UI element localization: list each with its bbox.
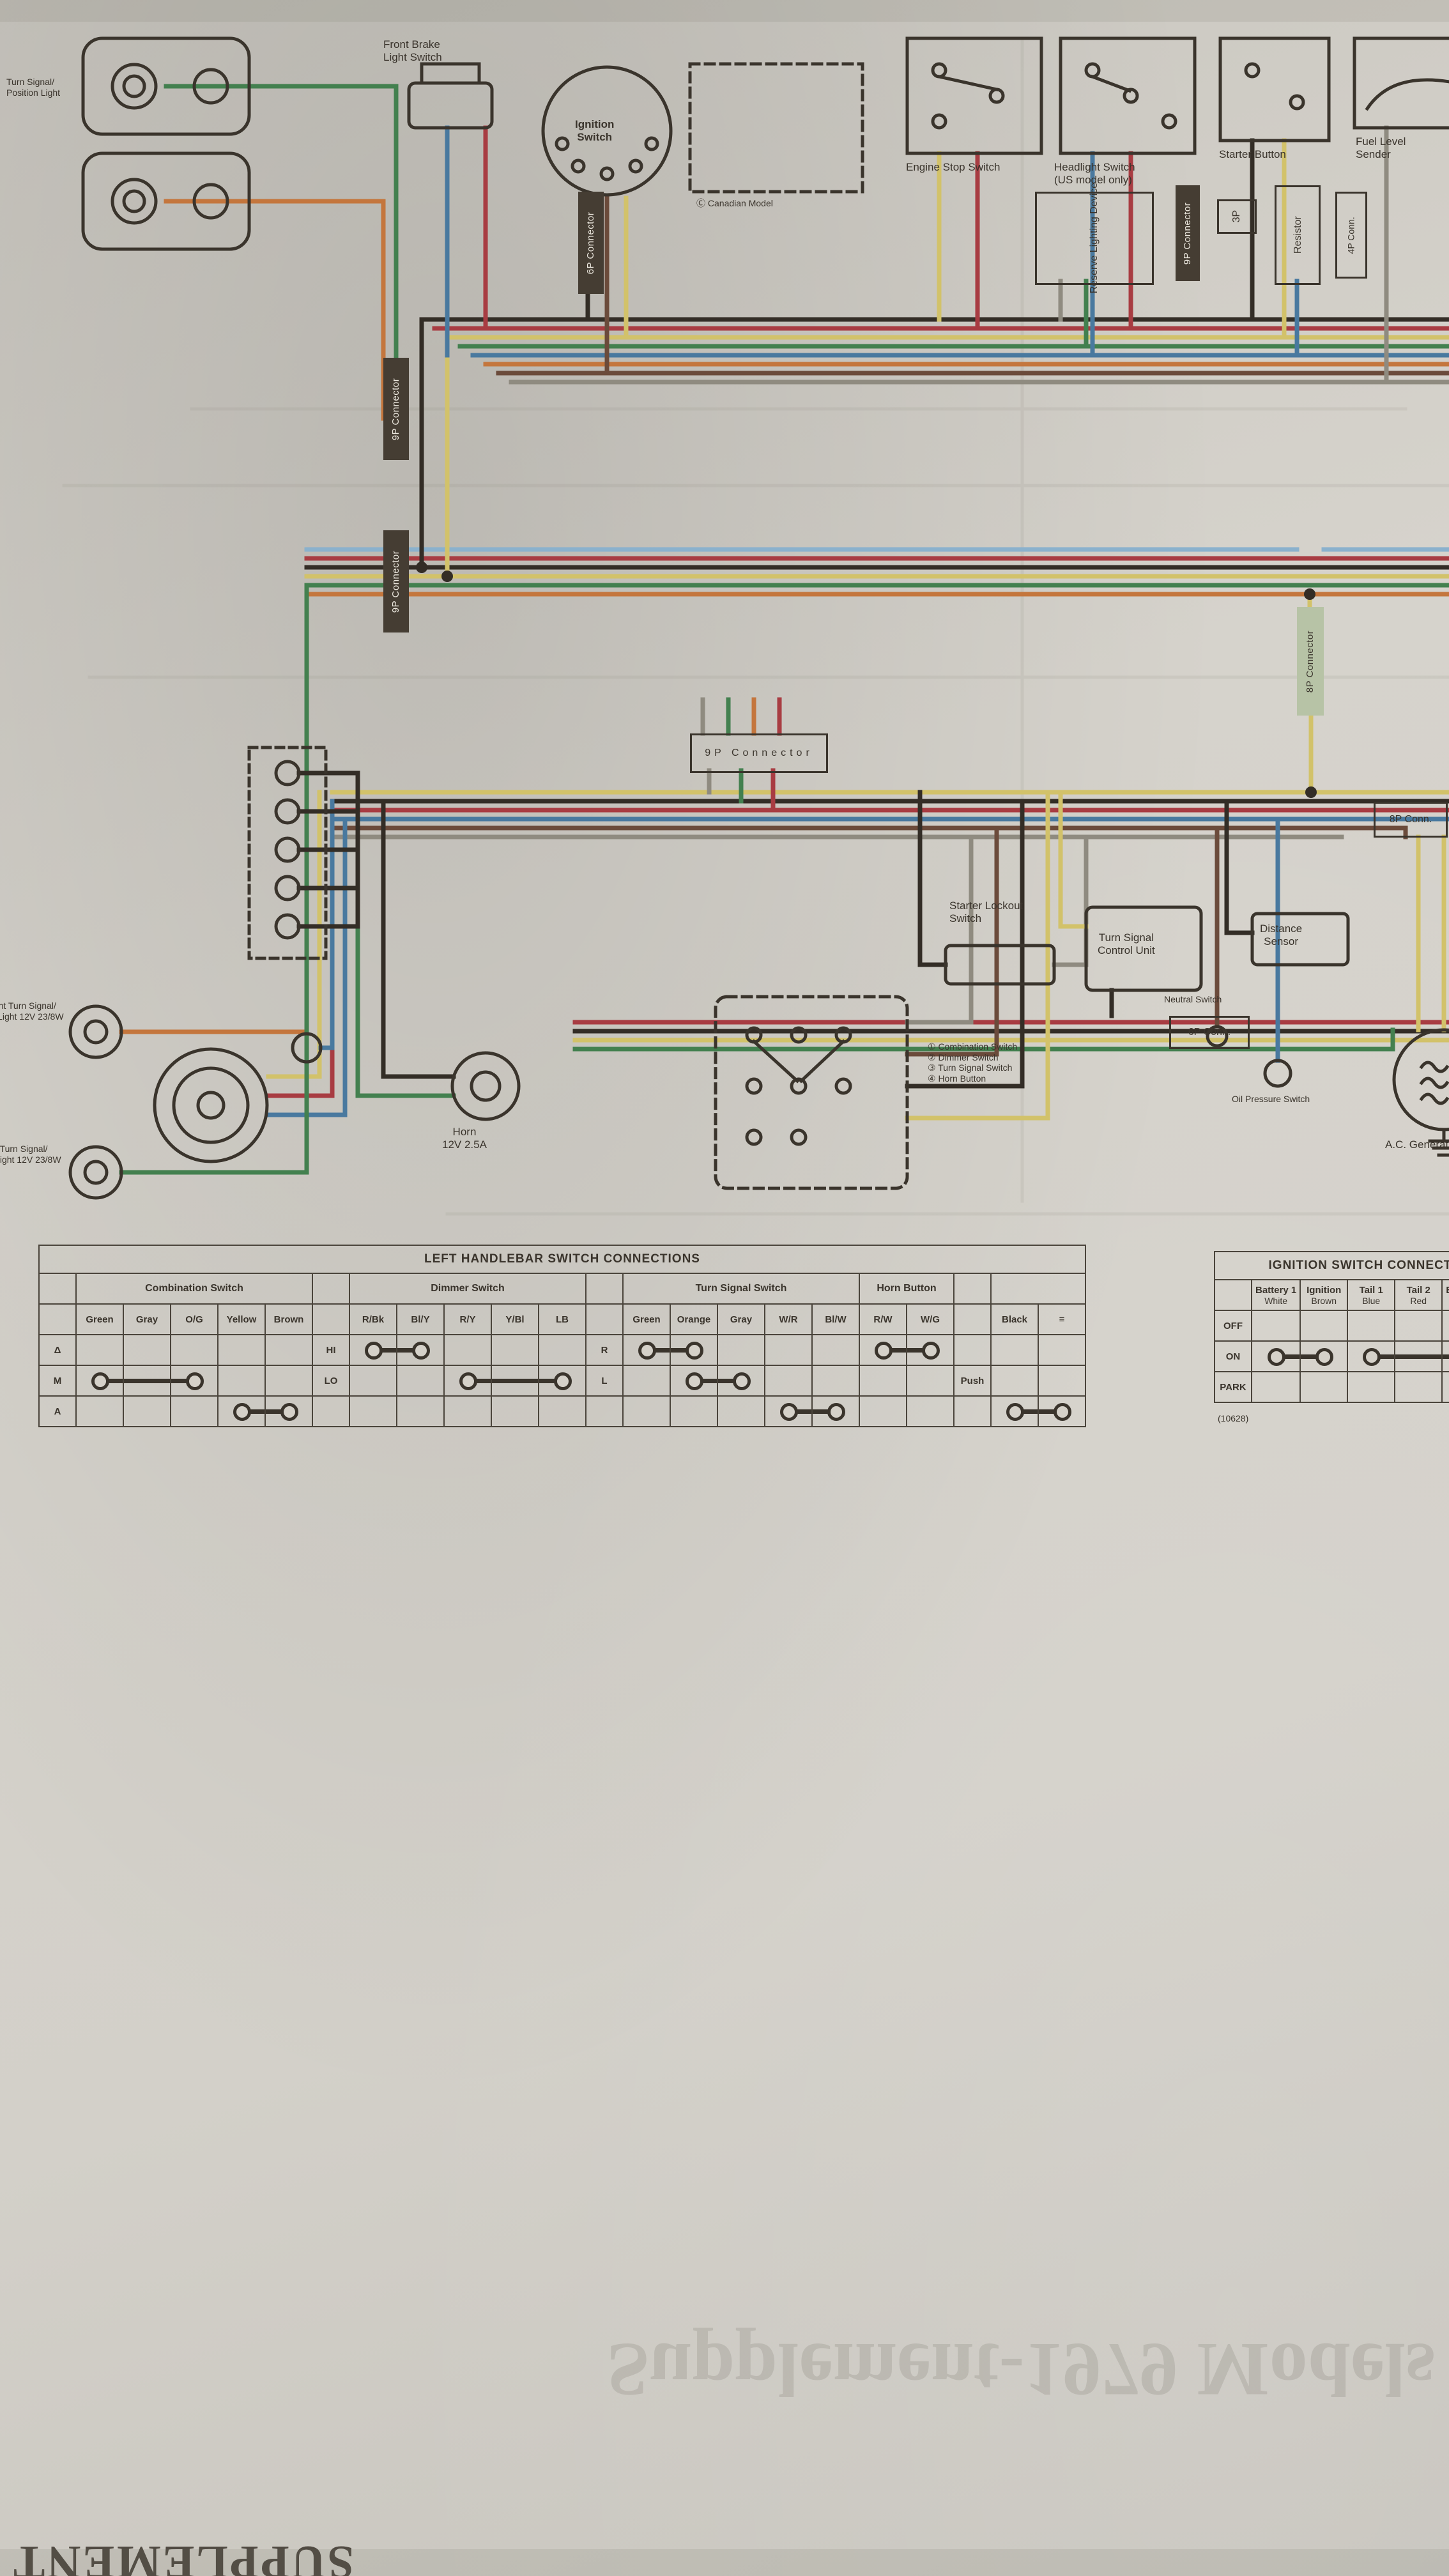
label-oil-pressure: Oil Pressure Switch [1232,1094,1310,1105]
photo-edge-bottom [0,2549,1449,2576]
label-6p-bar: 6P Connector [586,211,597,273]
headlight-icon [155,1049,267,1161]
label-front-right-signal: Front Right Turn Signal/ Running Light 1… [0,1000,64,1022]
diagram-canvas: path,line,circle,rect,ellipse{fill:none;… [0,0,1449,1449]
photo-edge-top [0,0,1449,22]
label-8p-bar: 8P Connector [1305,630,1316,692]
connector-9p-b: 9P Connector [383,530,409,632]
label-9p-mid: 9P Connector [705,747,813,759]
ignition-switch-table: IGNITION SWITCH CONNECTIONSBattery 1Whit… [1214,1251,1449,1403]
harness-trunk-lower [332,792,1449,939]
connection-table: LEFT HANDLEBAR SWITCH CONNECTIONSCombina… [38,1245,1086,1427]
horn-icon [452,1053,519,1119]
starter-lockout-icon [946,946,1054,984]
front-position-lights-icon [83,38,249,249]
label-ignition-switch: Ignition Switch [575,118,614,144]
front-turn-signal-icons [70,1006,321,1198]
left-switch-housing-icon [716,997,907,1188]
label-fuel-sender: Fuel Level Sender [1356,135,1406,161]
show-through-watermark: Supplement-1979 Models [607,2326,1436,2414]
label-neutral-switch: Neutral Switch [1164,994,1222,1005]
label-3p: 3P [1230,210,1243,223]
label-reserve-lighting: Reserve Lighting Device [1088,183,1100,293]
label-horn: Horn 12V 2.5A [442,1126,487,1151]
label-engine-stop: Engine Stop Switch [906,161,1000,174]
label-4p-top: 4P Conn. [1346,217,1357,254]
footnote: (10628) [1218,1413,1248,1424]
label-6p-tscu: 6P Conn. [1188,1026,1230,1038]
connector-9p-a: 9P Connector [383,358,409,460]
reserve-lighting-box: Reserve Lighting Device [1035,192,1154,285]
label-ac-generator: A.C. Generator [1385,1138,1449,1151]
label-front-left-signal: Front Left Turn Signal/ Running Light 12… [0,1144,61,1165]
label-9p-right: 9P Connector [1183,202,1193,264]
wiring-diagram-photo: path,line,circle,rect,ellipse{fill:none;… [0,0,1449,2576]
connector-8p-bar: 8P Connector [1297,607,1324,716]
connector-3p: 3P [1217,199,1257,234]
connector-9p-mid: 9P Connector [690,733,828,773]
label-ts-position: Turn Signal/ Position Light [6,77,60,98]
label-starter-lockout: Starter Lockout Switch [949,900,1023,925]
connection-table: IGNITION SWITCH CONNECTIONSBattery 1Whit… [1214,1251,1449,1403]
label-tscu: Turn Signal Control Unit [1098,931,1155,957]
canadian-model-box [690,64,862,192]
connector-8p-small: 8P Conn. [1374,802,1448,838]
label-9p-b: 9P Connector [391,550,402,612]
left-handlebar-table: LEFT HANDLEBAR SWITCH CONNECTIONSCombina… [38,1245,1086,1427]
connector-6p-bar: 6P Connector [578,192,604,294]
connector-6p-tscu: 6P Conn. [1169,1016,1250,1049]
connector-9p-right: 9P Connector [1176,185,1200,281]
label-front-brake: Front Brake Light Switch [383,38,442,64]
label-resistor: Resistor [1291,217,1303,254]
branch-wires [121,86,1449,1172]
label-distance-sensor: Distance Sensor [1260,923,1302,948]
resistor-box: Resistor [1275,185,1321,285]
connector-4p-top: 4P Conn. [1335,192,1367,279]
ac-generator-icon [1394,1030,1449,1130]
label-starter-button: Starter Button [1219,148,1286,161]
oil-pressure-switch-icon [1265,1061,1291,1086]
front-brake-switch-icon [409,64,492,128]
label-9p-a: 9P Connector [391,378,402,440]
label-canadian-model: Ⓒ Canadian Model [696,198,773,209]
label-8p-small: 8P Conn. [1390,813,1432,825]
switch-legend: ① Combination Switch ② Dimmer Switch ③ T… [928,1041,1017,1084]
